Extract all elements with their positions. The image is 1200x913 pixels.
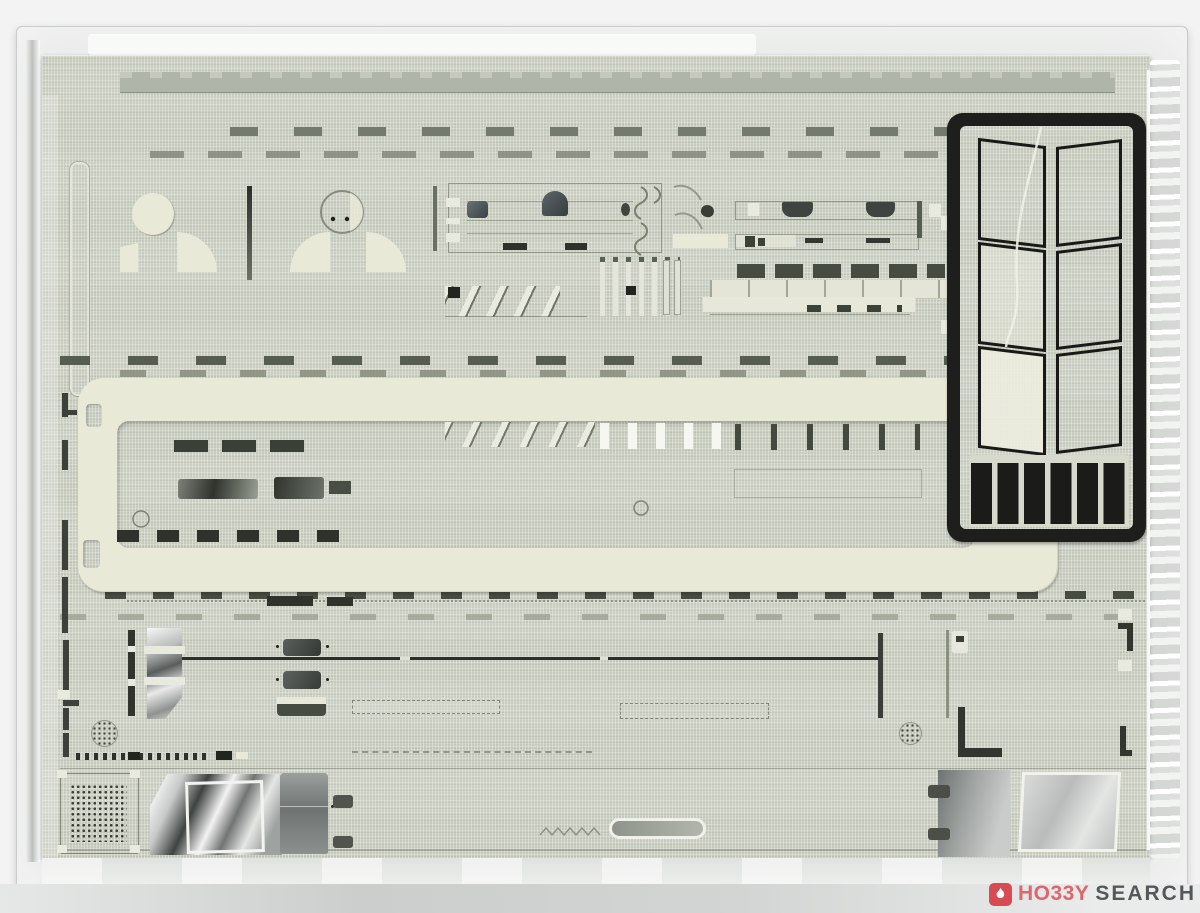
bag-left-edge	[26, 40, 40, 862]
edge-slot-column	[63, 708, 69, 730]
rivet-dot	[326, 645, 329, 648]
slot-cutout	[565, 243, 587, 250]
watermark-text-secondary: SEARCH	[1095, 882, 1196, 906]
slot-teeth	[120, 72, 1115, 78]
slit-gap	[400, 657, 410, 660]
diagonal-hatch-cuts	[445, 422, 595, 447]
edge-slot-column	[62, 440, 68, 470]
panel-score-line	[467, 220, 633, 221]
sprue-tab	[748, 203, 759, 216]
dash-perforation-row	[117, 530, 349, 542]
dash-perforation-row	[60, 614, 1145, 620]
slot-cutout	[503, 243, 527, 250]
slot-cutout	[128, 752, 140, 760]
window-frame-part	[185, 780, 265, 854]
sprue-tab	[446, 218, 460, 224]
shiny-window-cutout	[1018, 772, 1121, 852]
sprue-tab	[130, 770, 140, 778]
castellated-slot	[120, 72, 1115, 93]
fret-window-frame	[1056, 243, 1122, 350]
slot-cutout	[236, 752, 248, 759]
window-cutout	[277, 704, 326, 716]
panel-score-line	[710, 314, 910, 315]
fret-window-frame	[978, 346, 1046, 456]
slot-gap	[128, 679, 135, 686]
diagonal-hatch-cuts	[445, 286, 560, 317]
window-cutout	[283, 639, 321, 656]
edge-slot-column	[63, 700, 79, 706]
door-cutout	[938, 770, 1010, 857]
fold-score-line	[60, 768, 1146, 769]
edge-slot-column	[62, 520, 68, 570]
under-sheet-edge	[42, 95, 58, 857]
bag-crinkle-edge	[1150, 60, 1180, 858]
bag-top-flap	[88, 34, 756, 56]
slot-gap	[128, 646, 135, 652]
sprue-tab	[446, 233, 460, 242]
slot-cutout	[866, 238, 890, 243]
dotted-perforation-row	[76, 753, 208, 760]
rivet-dot	[276, 645, 279, 648]
round-disc-part	[132, 193, 174, 235]
frame-cutout	[83, 540, 100, 568]
hook-slot-row	[735, 424, 920, 450]
slot-cutout	[216, 751, 232, 760]
slot-cutout	[805, 238, 823, 243]
scribed-rectangle	[734, 469, 922, 498]
divider-slot	[917, 201, 922, 238]
dash-perforation-row	[105, 591, 1145, 599]
frame-cutout	[86, 404, 102, 427]
l-shaped-slot	[958, 748, 1002, 757]
sprue-tab	[446, 198, 460, 207]
edge-slot-column	[63, 640, 69, 696]
fret-black-tabs	[971, 463, 1127, 524]
slot-cutout	[758, 238, 765, 246]
window-cutout	[283, 671, 321, 689]
sprue-tab	[58, 690, 70, 699]
bag-bottom-streaks	[42, 858, 1150, 884]
watermark-text-primary: HO33Y	[1018, 882, 1089, 906]
slot-cutout	[745, 236, 755, 247]
square-window-row	[737, 264, 945, 278]
slot-cutout	[673, 234, 728, 248]
vertical-slot	[878, 633, 883, 718]
vertical-slot	[128, 630, 135, 716]
rivet-dot	[326, 678, 329, 681]
sprue-tab	[1118, 609, 1132, 620]
light-slot	[674, 260, 681, 315]
dash-perforation-row	[807, 305, 902, 312]
grille-dot-grid	[70, 784, 127, 842]
slot-cutout	[327, 597, 353, 606]
sprue-tab	[130, 845, 140, 853]
cross-bar	[144, 677, 185, 685]
fret-window-frame	[1056, 346, 1122, 454]
edge-slot-column	[63, 733, 69, 757]
small-window-cutout	[333, 836, 353, 848]
corner-bracket-slot	[1120, 750, 1132, 756]
fret-window-frame	[1056, 139, 1122, 247]
panel-score-line	[467, 233, 633, 234]
perforated-dot-circle	[899, 722, 922, 745]
small-window-cutout	[333, 795, 353, 808]
window-cutout	[277, 697, 326, 704]
divider-slot	[433, 186, 437, 251]
sprue-tab	[1118, 660, 1132, 671]
small-window-cutout	[928, 785, 950, 798]
hatch-dark-mark	[448, 287, 460, 298]
comb-dark-mark	[626, 286, 636, 295]
flame-glyph	[992, 886, 1009, 903]
shiny-slot-cutout	[178, 479, 258, 499]
strip-dividers	[710, 280, 953, 298]
shiny-slot-cutout	[274, 477, 324, 499]
slot-cutout	[267, 596, 313, 606]
window-cutout	[621, 203, 630, 216]
perforated-dot-circle	[91, 720, 118, 747]
edge-slot-column	[62, 410, 77, 415]
arch-window-cutout	[542, 191, 568, 216]
slot-cutout	[956, 636, 964, 642]
light-slot	[663, 260, 670, 315]
sprue-tab	[57, 845, 67, 853]
sprue-tab	[952, 631, 968, 653]
window-cutout	[866, 202, 895, 217]
slot-cutout	[329, 481, 351, 494]
stitched-rectangle	[352, 700, 500, 714]
door-score-line	[280, 806, 328, 807]
vertical-score	[946, 630, 949, 718]
long-thin-slit	[182, 657, 880, 660]
window-cutout	[782, 202, 813, 217]
stitched-line	[352, 751, 592, 753]
rivet-dot	[276, 678, 279, 681]
panel-score-line	[445, 316, 587, 317]
stitched-rectangle	[620, 703, 769, 719]
fret-window-frame	[978, 242, 1046, 352]
sprue-tab	[929, 204, 941, 217]
tab-row	[600, 423, 725, 449]
hobby-search-watermark: HO33Y SEARCH	[989, 882, 1196, 906]
window-cutout	[467, 201, 488, 218]
edge-slot-column	[62, 577, 68, 633]
corner-bracket-slot	[1127, 623, 1133, 651]
door-cutout	[280, 773, 328, 854]
cross-bar	[144, 646, 185, 654]
running-board-strip	[710, 280, 953, 298]
divider-slot	[247, 186, 252, 280]
flame-icon	[989, 883, 1012, 906]
fret-window-frame	[978, 138, 1046, 248]
pill-cutout	[609, 818, 706, 839]
sprue-tab	[57, 770, 67, 778]
slot-row	[174, 440, 314, 452]
small-wedge-cutout	[120, 243, 138, 272]
slit-gap	[600, 657, 608, 660]
product-photo: HO33Y SEARCH	[0, 0, 1200, 913]
small-window-cutout	[928, 828, 950, 840]
